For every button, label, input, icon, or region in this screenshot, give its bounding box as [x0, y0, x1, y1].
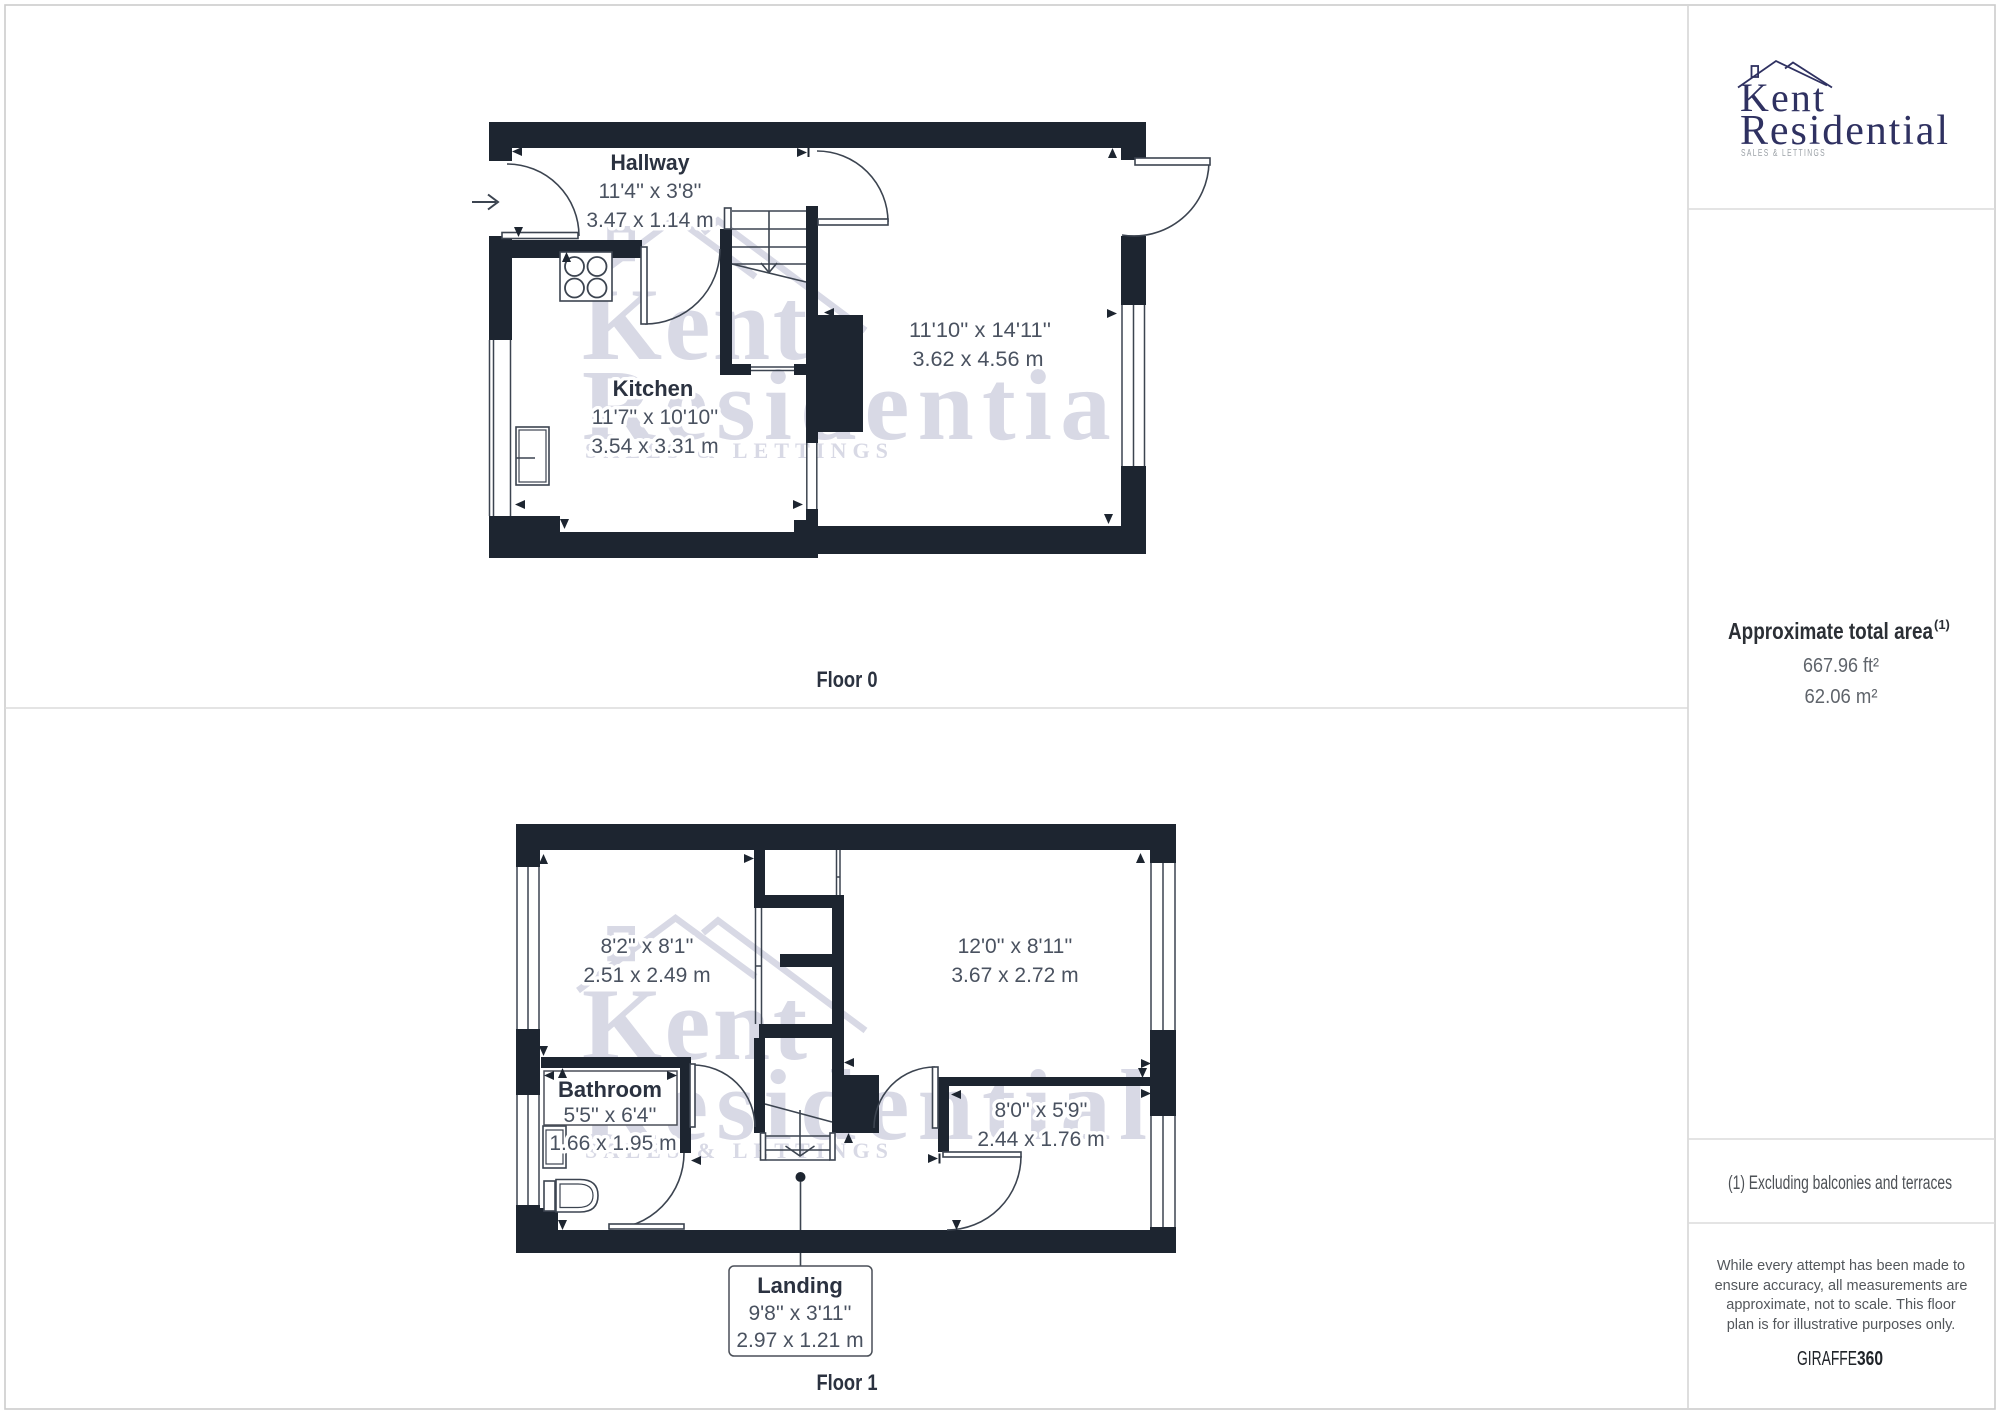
svg-text:667.96 ft²: 667.96 ft²	[1803, 654, 1879, 677]
svg-text:11'10'' x 14'11'': 11'10'' x 14'11''	[909, 319, 1051, 342]
svg-text:Floor 0: Floor 0	[817, 667, 878, 692]
svg-text:5'5'' x 6'4'': 5'5'' x 6'4''	[564, 1104, 657, 1127]
svg-text:GIRAFFE: GIRAFFE	[1797, 1348, 1857, 1370]
svg-text:Floor 1: Floor 1	[817, 1370, 878, 1395]
svg-text:360: 360	[1857, 1348, 1883, 1370]
svg-text:3.62 x 4.56 m: 3.62 x 4.56 m	[913, 348, 1044, 371]
svg-text:Kitchen: Kitchen	[613, 376, 694, 401]
svg-text:3.54 x 3.31 m: 3.54 x 3.31 m	[591, 435, 718, 458]
svg-text:3.67 x 2.72 m: 3.67 x 2.72 m	[951, 964, 1078, 987]
svg-text:plan is for illustrative purpo: plan is for illustrative purposes only.	[1727, 1317, 1956, 1333]
svg-text:Approximate total area: Approximate total area	[1728, 618, 1933, 644]
svg-text:9'8'' x 3'11'': 9'8'' x 3'11''	[748, 1302, 851, 1325]
svg-text:2.44 x 1.76 m: 2.44 x 1.76 m	[977, 1128, 1104, 1151]
svg-text:Hallway: Hallway	[611, 150, 691, 175]
svg-text:11'7'' x 10'10'': 11'7'' x 10'10''	[592, 406, 718, 429]
svg-text:3.47 x 1.14 m: 3.47 x 1.14 m	[586, 209, 713, 232]
svg-text:Landing: Landing	[757, 1273, 843, 1298]
svg-text:8'2'' x 8'1'': 8'2'' x 8'1''	[601, 935, 694, 958]
svg-text:(1): (1)	[1934, 617, 1950, 632]
svg-text:SALES & LETTINGS: SALES & LETTINGS	[1741, 148, 1826, 159]
svg-text:Bathroom: Bathroom	[558, 1077, 662, 1102]
svg-text:ensure accuracy, all measureme: ensure accuracy, all measurements are	[1715, 1278, 1968, 1294]
svg-text:62.06 m²: 62.06 m²	[1805, 685, 1878, 708]
svg-text:1.66 x 1.95 m: 1.66 x 1.95 m	[549, 1132, 676, 1155]
svg-text:2.51 x 2.49 m: 2.51 x 2.49 m	[583, 964, 710, 987]
svg-text:approximate, not to scale. Thi: approximate, not to scale. This floor	[1726, 1297, 1956, 1313]
svg-text:(1) Excluding balconies and te: (1) Excluding balconies and terraces	[1728, 1173, 1952, 1194]
svg-text:11'4'' x 3'8'': 11'4'' x 3'8''	[598, 180, 701, 203]
svg-text:8'0'' x 5'9'': 8'0'' x 5'9''	[995, 1099, 1088, 1122]
svg-text:12'0'' x 8'11'': 12'0'' x 8'11''	[958, 935, 1073, 958]
svg-text:While every attempt has been m: While every attempt has been made to	[1717, 1258, 1965, 1274]
svg-text:2.97 x 1.21 m: 2.97 x 1.21 m	[736, 1329, 863, 1352]
